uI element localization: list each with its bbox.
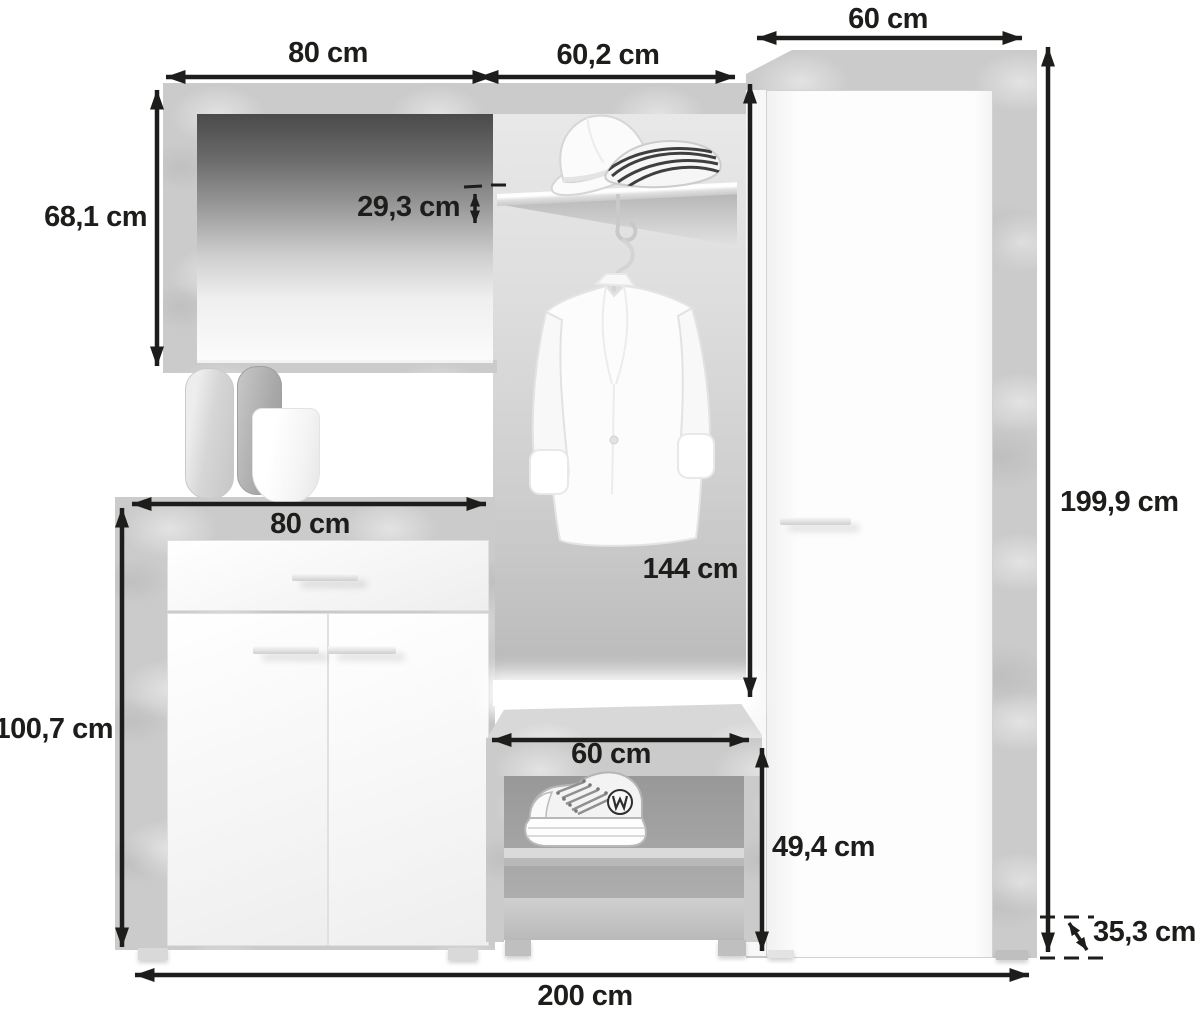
dimension-label-bench-width: 60 cm — [571, 736, 651, 772]
dimension-label-hook-panel-height: 144 cm — [643, 551, 738, 587]
arrow-total-depth — [1069, 923, 1087, 950]
dimension-diagram: 80 cm 60,2 cm 60 cm 68,1 cm 29,3 cm 80 c… — [0, 0, 1200, 1020]
dimension-label-total-depth: 35,3 cm — [1093, 914, 1196, 950]
dimension-label-hook-panel-width: 60,2 cm — [557, 37, 660, 73]
dash-shelf-offset-left — [464, 186, 482, 187]
dimension-label-wardrobe-width: 60 cm — [848, 1, 928, 37]
dimension-label-bench-height: 49,4 cm — [772, 829, 875, 865]
dimension-label-cabinet-height: 100,7 cm — [0, 711, 113, 747]
dimension-label-shelf-offset: 29,3 cm — [357, 189, 460, 225]
dimension-label-total-width: 200 cm — [537, 978, 632, 1014]
dimension-label-mirror-width: 80 cm — [288, 35, 368, 71]
dimension-arrows — [0, 0, 1200, 1020]
dimension-label-cabinet-width: 80 cm — [270, 506, 350, 542]
dimension-label-total-height: 199,9 cm — [1060, 484, 1179, 520]
dimension-label-mirror-height: 68,1 cm — [44, 199, 147, 235]
